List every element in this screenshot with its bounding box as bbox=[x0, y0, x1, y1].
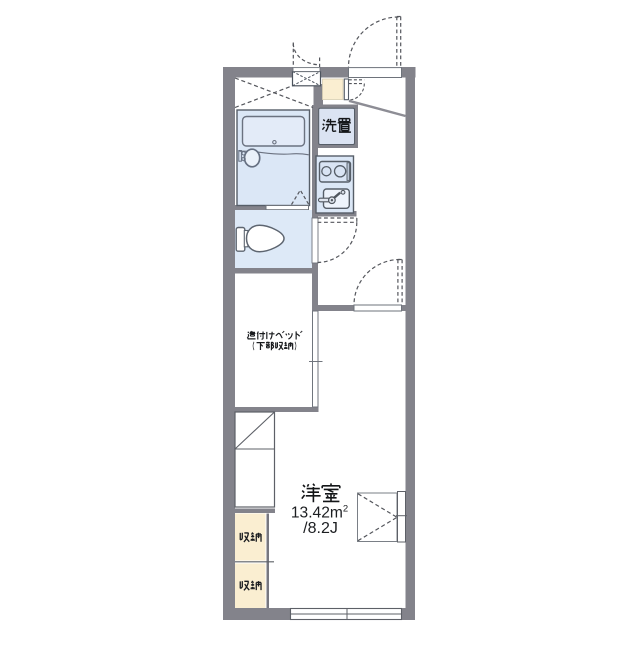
svg-text:/8.2J: /8.2J bbox=[303, 520, 338, 537]
svg-text:13.42m2: 13.42m2 bbox=[291, 503, 348, 521]
